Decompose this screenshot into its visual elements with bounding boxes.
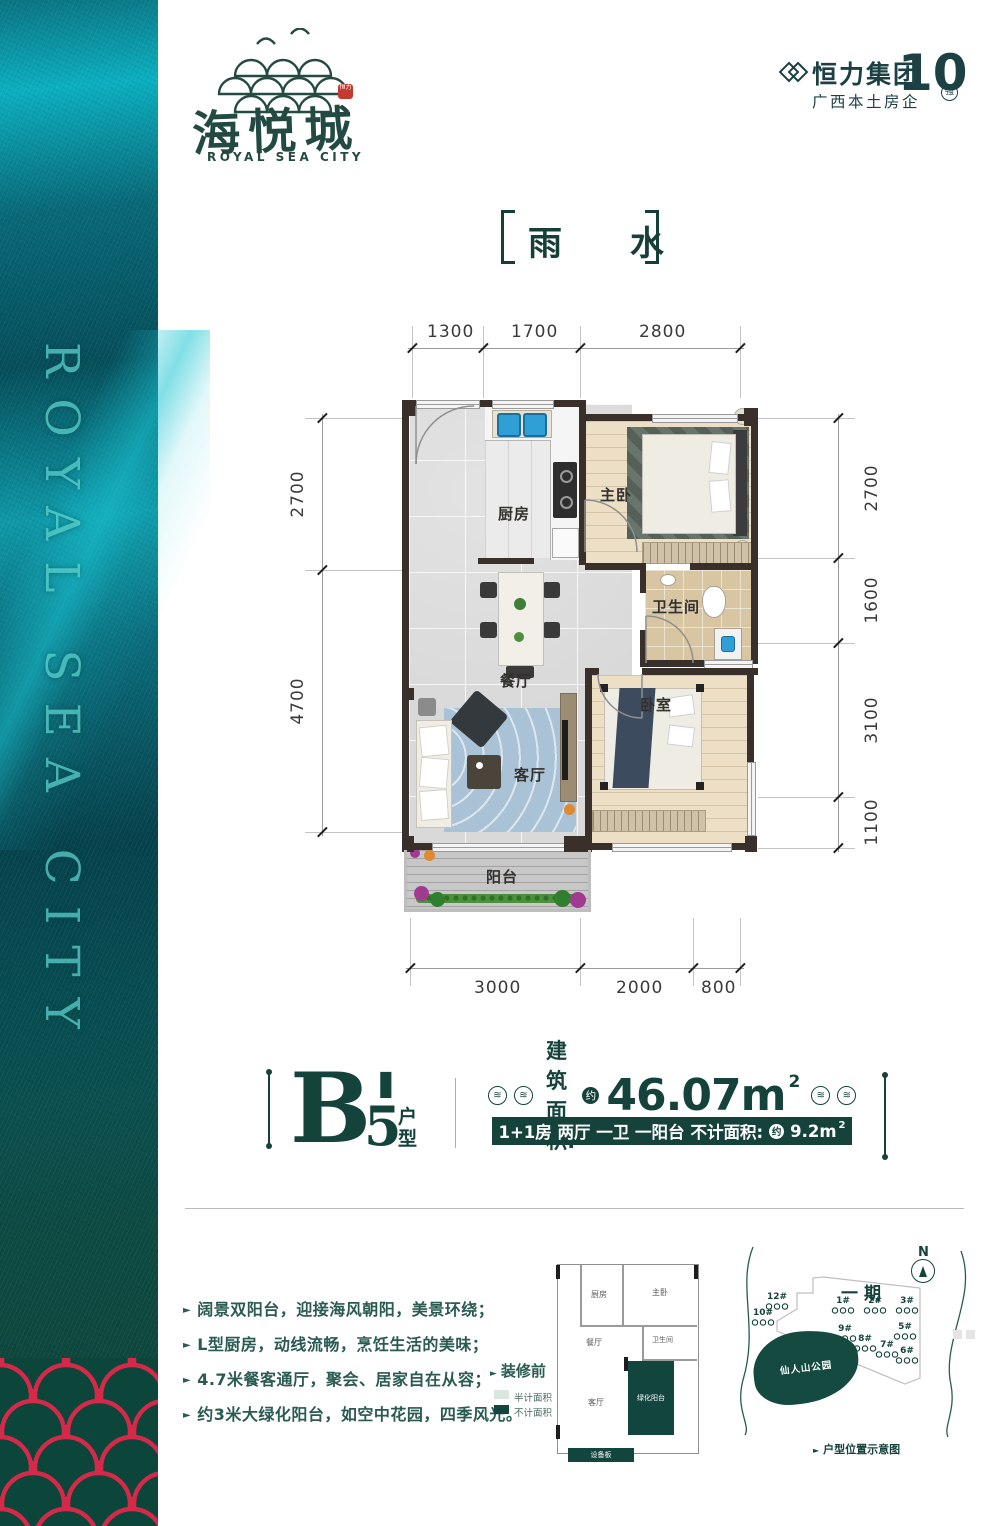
legend-swatch-none [494, 1405, 509, 1414]
building-marker: 3# [895, 1297, 919, 1314]
dim-top-2: 1700 [511, 322, 558, 342]
dim-top-3: 2800 [639, 322, 686, 342]
building-marker: 1# [831, 1297, 855, 1314]
dim-right-3: 3100 [862, 690, 882, 750]
mini-wall-accent [556, 1265, 560, 1279]
site-plan-group: N 一期 12# 10# 1# 2# 3# 9# 8# 7# 5# 6# 仙人山… [735, 1245, 985, 1463]
mini-wall-accent [556, 1425, 560, 1439]
mini-plan-title-text: 装修前 [501, 1362, 546, 1380]
building-label: 1# [831, 1297, 855, 1306]
area-value: 46.07m [606, 1070, 785, 1121]
room-label-bedroom: 卧室 [640, 694, 672, 715]
extension-line [758, 797, 855, 798]
extension-line [693, 918, 694, 986]
feature-item: ►约3米大绿化阳台，如空中花园，四季风光。 [183, 1401, 522, 1425]
mini-wall-accent [694, 1265, 698, 1279]
section-rule [185, 1208, 964, 1209]
spec-rooms: 1+1房 两厅 一卫 一阳台 [498, 1119, 684, 1143]
floor-plan: 厨房 主卧 卫生间 餐厅 卧室 客厅 阳台 [402, 400, 758, 915]
building-label: 10# [751, 1309, 775, 1318]
unit-code-number: 5 [364, 1094, 402, 1158]
room-label-kitchen: 厨房 [498, 503, 530, 524]
brand-seal: 恒力 [338, 84, 353, 99]
bullet-arrow-icon: ► [183, 1375, 191, 1386]
approx-badge: 约 [582, 1087, 599, 1104]
building-marker: 10# [751, 1309, 775, 1326]
bullet-arrow-icon: ► [490, 1369, 497, 1379]
dim-bottom-1: 3000 [474, 978, 521, 998]
red-scale-pattern [0, 1358, 158, 1526]
mini-room-label: 餐厅 [586, 1337, 602, 1348]
door-arcs [402, 400, 758, 915]
mini-room-label: 卫生间 [652, 1335, 673, 1345]
mini-wall [580, 1325, 697, 1327]
building-label: 9# [833, 1325, 857, 1334]
feature-text: L型厨房，动线流畅，烹饪生活的美味； [197, 1335, 488, 1354]
room-label-master: 主卧 [600, 484, 632, 505]
mini-room-label: 客厅 [588, 1397, 604, 1408]
building-label: 8# [853, 1335, 877, 1344]
feature-item: ►4.7米餐客通厅，聚会、居家自在从容； [183, 1366, 491, 1390]
extension-line [580, 918, 581, 986]
park-label: 仙人山公园 [779, 1357, 833, 1377]
side-vertical-brand-text: ROYAL SEA CITY [34, 342, 89, 1242]
mini-room-label: 厨房 [591, 1289, 607, 1300]
dim-right-1: 2700 [862, 458, 882, 518]
area-sup: 2 [788, 1072, 800, 1092]
dimension-line-right [838, 414, 839, 852]
spec-area-label: 不计面积: [691, 1119, 764, 1143]
mini-green-balcony: 绿化阳台 [628, 1361, 674, 1435]
extension-line [483, 326, 484, 398]
accent-line-left [268, 1072, 270, 1146]
wave-medal-icon: ≋ [811, 1086, 830, 1105]
building-marker: 5# [893, 1323, 917, 1340]
developer-rank-badge: 强 [941, 84, 958, 101]
legend-swatch-half [494, 1390, 509, 1399]
bullet-arrow-icon: ► [183, 1305, 191, 1316]
bullet-arrow-icon: ► [813, 1446, 819, 1455]
extension-line [740, 326, 741, 398]
room-label-bath: 卫生间 [652, 596, 700, 617]
site-plan-caption: ►户型位置示意图 [813, 1441, 900, 1457]
building-footprint-icon [863, 1307, 887, 1314]
dimension-line-top [408, 348, 744, 349]
extension-line [758, 418, 855, 419]
compass-icon [911, 1259, 935, 1283]
poster-canvas: ROYAL SEA CITY 海悦城 恒力 ROYAL SEA CITY 恒力集… [0, 0, 1000, 1526]
building-footprint-icon [751, 1319, 775, 1326]
mini-room-label: 主卧 [652, 1287, 668, 1298]
building-footprint-icon [893, 1333, 917, 1340]
left-bracket [501, 210, 515, 264]
mini-equipment: 设备板 [568, 1448, 634, 1462]
extension-line [410, 918, 411, 986]
feature-item: ►阔景双阳台，迎接海风朝阳，美景环绕； [183, 1296, 494, 1320]
feature-item: ►L型厨房，动线流畅，烹饪生活的美味； [183, 1331, 488, 1355]
building-footprint-icon [895, 1357, 919, 1364]
site-plan-caption-text: 户型位置示意图 [823, 1443, 900, 1456]
feature-text: 约3米大绿化阳台，如空中花园，四季风光。 [197, 1405, 522, 1424]
wave-medal-icon: ≋ [837, 1086, 856, 1105]
building-label: 2# [863, 1297, 887, 1306]
room-label-balcony: 阳台 [486, 866, 518, 887]
legend-label-none: 不计面积 [514, 1405, 552, 1419]
right-bracket [645, 210, 659, 264]
building-footprint-icon [831, 1307, 855, 1314]
compass-label: N [918, 1245, 929, 1260]
unit-divider [455, 1078, 456, 1148]
building-label: 6# [895, 1347, 919, 1356]
building-marker: 6# [895, 1347, 919, 1364]
dim-right-4: 1100 [862, 792, 882, 852]
brand-name-en: ROYAL SEA CITY [207, 150, 364, 164]
developer-diamond-icon [779, 61, 809, 83]
building-label: 3# [895, 1297, 919, 1306]
building-footprint-icon [895, 1307, 919, 1314]
mini-wall [622, 1265, 624, 1325]
extension-line [758, 848, 855, 849]
spec-bar: 1+1房 两厅 一卫 一阳台 不计面积: 约 9.2m 2 [492, 1117, 852, 1145]
spec-area-value: 9.2m [790, 1122, 836, 1141]
dimension-line-left [322, 414, 323, 836]
extension-line [758, 558, 855, 559]
dim-bottom-2: 2000 [616, 978, 663, 998]
mini-plan-group: ►装修前 半计面积 不计面积 绿化阳台 设备板 厨房 主卧 餐厅 卫生间 [488, 1258, 718, 1473]
mini-plan-drawing: 绿化阳台 设备板 厨房 主卧 餐厅 卫生间 客厅 [557, 1264, 699, 1454]
area-line: ≋ ≋ 建筑面积: 约 46.07m 2 ≋ ≋ [488, 1072, 854, 1118]
feature-text: 阔景双阳台，迎接海风朝阳，美景环绕； [197, 1300, 494, 1319]
water-highlight [0, 330, 210, 850]
dim-left-1: 2700 [288, 464, 308, 524]
room-label-living: 客厅 [514, 764, 546, 785]
extension-line [758, 643, 855, 644]
feature-text: 4.7米餐客通厅，聚会、居家自在从容； [197, 1370, 491, 1389]
dim-right-2: 1600 [862, 570, 882, 630]
dim-top-1: 1300 [427, 322, 474, 342]
wave-medal-icon: ≋ [488, 1086, 507, 1105]
compass-needle [919, 1266, 927, 1277]
room-label-dining: 餐厅 [500, 670, 532, 691]
dim-left-2: 4700 [288, 671, 308, 731]
spec-area-sup: 2 [839, 1120, 846, 1131]
bullet-arrow-icon: ► [183, 1410, 191, 1421]
building-label: 12# [765, 1293, 789, 1302]
extension-line [580, 326, 581, 398]
solar-term-title: 雨 水 [528, 216, 692, 265]
mini-plan-title: ►装修前 [490, 1360, 546, 1381]
legend-label-half: 半计面积 [514, 1390, 552, 1404]
mini-wall [580, 1265, 582, 1325]
mini-wall [642, 1325, 644, 1361]
developer-tagline: 广西本土房企 [812, 90, 920, 112]
wave-medal-icon: ≋ [514, 1086, 533, 1105]
mini-room-label: 绿化阳台 [637, 1393, 665, 1403]
building-marker: 2# [863, 1297, 887, 1314]
unit-type-char: 型 [398, 1124, 417, 1151]
building-label: 5# [893, 1323, 917, 1332]
decor-square [966, 1330, 975, 1339]
accent-line-right [884, 1075, 886, 1157]
extension-line [412, 326, 413, 398]
extension-line [740, 918, 741, 986]
dim-bottom-3: 800 [701, 978, 736, 998]
decor-square [953, 1330, 962, 1339]
approx-badge: 约 [769, 1124, 784, 1139]
mini-room-label: 设备板 [591, 1450, 612, 1460]
bullet-arrow-icon: ► [183, 1340, 191, 1351]
